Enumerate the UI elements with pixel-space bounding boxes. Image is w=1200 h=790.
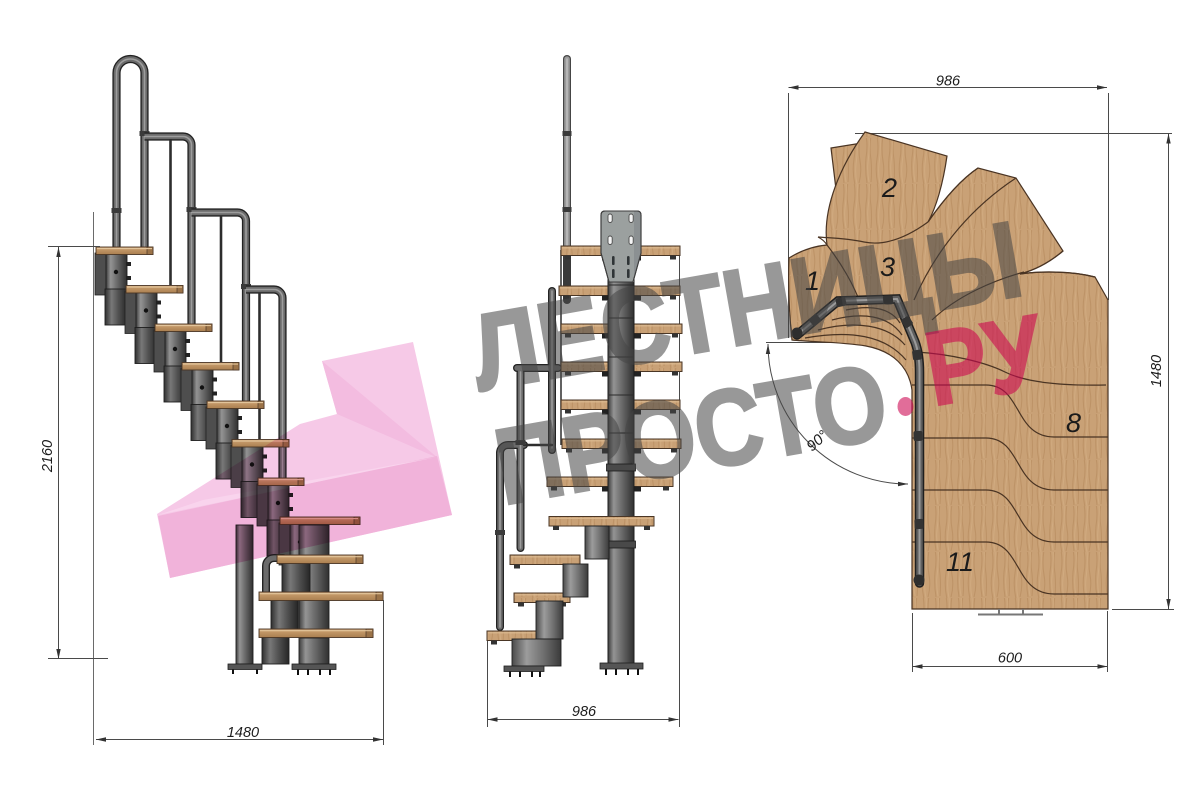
- svg-text:1480: 1480: [1149, 355, 1165, 387]
- svg-text:986: 986: [936, 74, 961, 90]
- svg-text:2160: 2160: [40, 440, 56, 473]
- svg-text:11: 11: [946, 547, 974, 577]
- svg-text:1480: 1480: [227, 725, 259, 741]
- svg-text:8: 8: [1066, 408, 1081, 438]
- svg-text:600: 600: [998, 651, 1022, 667]
- svg-text:2: 2: [881, 173, 897, 203]
- svg-text:РУ: РУ: [917, 293, 1054, 429]
- svg-text:986: 986: [572, 704, 597, 720]
